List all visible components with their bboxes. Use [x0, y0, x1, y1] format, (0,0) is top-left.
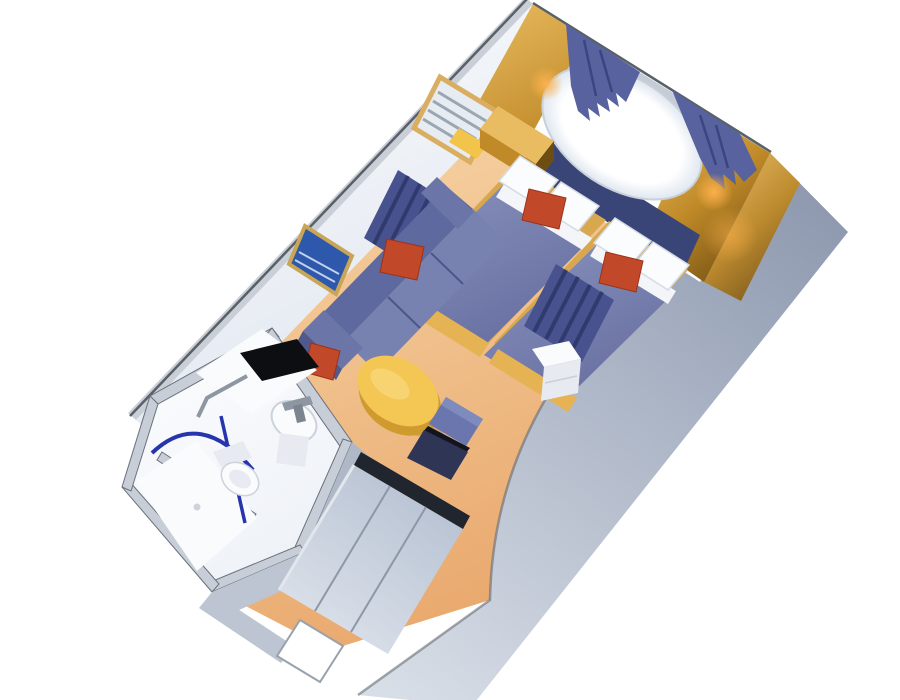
- sconce-glow-spill: [702, 207, 758, 263]
- sink-pedestal: [276, 433, 309, 467]
- shower-drain: [194, 504, 201, 511]
- sofa-red-pillow: [380, 239, 424, 280]
- stateroom-floorplan-render: [0, 0, 900, 700]
- floorplan-svg: [0, 0, 900, 700]
- wall-sconce-right: [695, 173, 733, 211]
- wall-sconce-left: [529, 67, 563, 101]
